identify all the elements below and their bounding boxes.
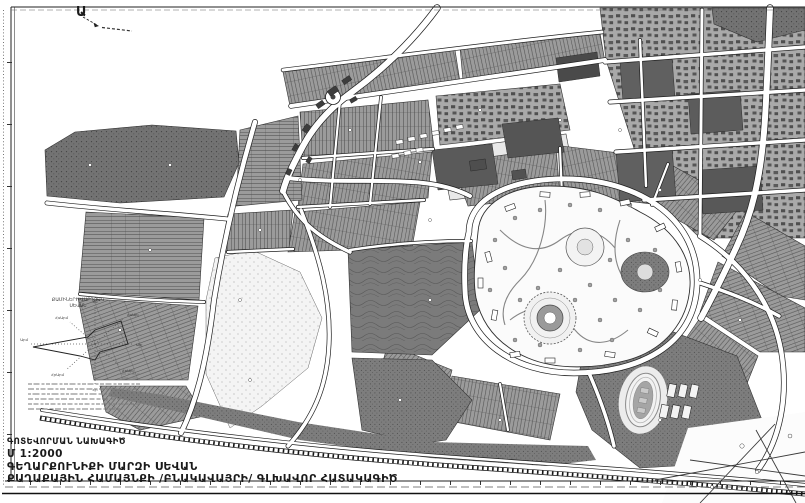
dir-nw: ՀսԱրմ bbox=[55, 315, 68, 320]
scanned-map-page: ՔԱՄԻՆԵՐԻ ՎԱՐԴՅԱԿ ՍԵՎԱՆ Հս ՀսԱրլ Արլ ՀրԱր… bbox=[0, 0, 805, 503]
dir-e: Արլ bbox=[136, 342, 143, 347]
forest-area bbox=[45, 125, 239, 203]
title-scale: Մ 1:2000 bbox=[7, 448, 63, 460]
dir-se: ՀրԱրլ bbox=[122, 368, 134, 373]
zoning-map-canvas: ՔԱՄԻՆԵՐԻ ՎԱՐԴՅԱԿ ՍԵՎԱՆ Հս ՀսԱրլ Արլ ՀրԱր… bbox=[0, 0, 805, 503]
title-project-type: ԳՈՏԵՎՈՐՄԱՆ ՆԱԽԱԳԻԾ bbox=[7, 437, 126, 447]
dir-w: Արմ bbox=[20, 337, 28, 342]
dir-n: Հս bbox=[92, 299, 98, 304]
wind-rose-subtitle: ՍԵՎԱՆ bbox=[69, 303, 87, 309]
title-document: ՔԱՂԱՔԱՅԻՆ ՀԱՄԱՅՆՔԻ /ԲՆԱԿԱՎԱՅՐԻ/ ԳԼԽԱՎՈՐ … bbox=[7, 472, 398, 485]
dir-sw: ՀրԱրմ bbox=[51, 372, 64, 377]
dir-ne: ՀսԱրլ bbox=[127, 312, 139, 317]
